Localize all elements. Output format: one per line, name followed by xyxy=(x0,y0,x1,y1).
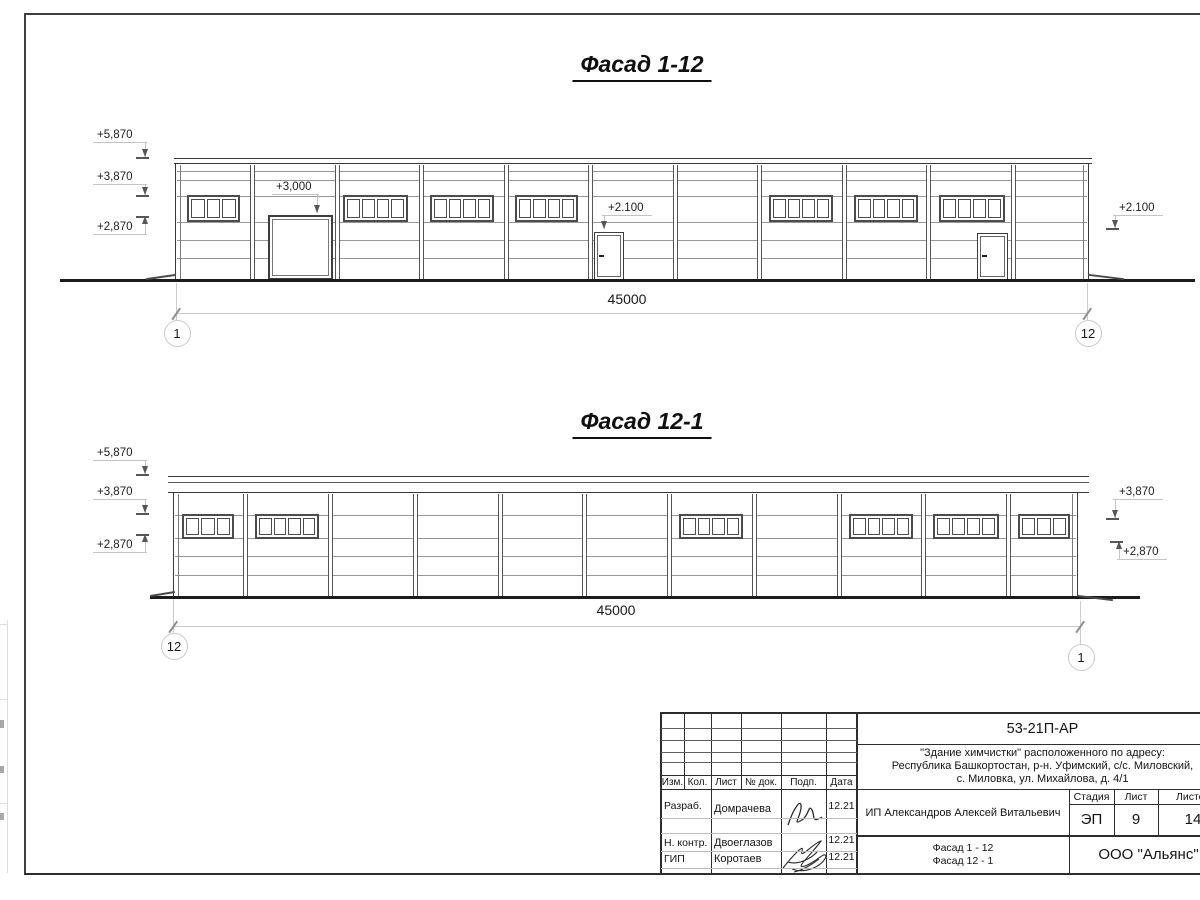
window-pane xyxy=(274,518,287,535)
sheet-frame-bottom xyxy=(24,873,1200,876)
titleblock-line xyxy=(661,789,1200,791)
ground-line xyxy=(60,279,1195,282)
roof-band-line xyxy=(168,482,1089,483)
window-pane xyxy=(207,199,221,218)
siding-line xyxy=(175,575,1076,576)
facade-1-12-title: Фасад 1-12 xyxy=(573,51,712,82)
column xyxy=(504,165,509,280)
arrow-down-icon xyxy=(142,466,148,474)
titleblock-line xyxy=(781,713,782,873)
edge-artifact xyxy=(0,813,4,820)
tb-sheets-header: Листов xyxy=(1158,790,1200,804)
column xyxy=(842,165,847,280)
level-tick xyxy=(136,474,149,476)
elevation-label: +5,870 xyxy=(97,447,133,459)
level-tick xyxy=(136,157,149,159)
window-pane xyxy=(773,199,786,218)
dimension-text: 45000 xyxy=(587,291,667,307)
edge-artifact xyxy=(0,720,4,728)
column xyxy=(243,494,248,597)
titleblock-line xyxy=(1114,790,1115,836)
window-pane xyxy=(952,518,965,535)
elevation-underline xyxy=(93,142,147,143)
column xyxy=(673,165,678,280)
window-pane xyxy=(967,518,980,535)
edge-artifact xyxy=(7,620,8,873)
facade-wall xyxy=(173,493,1078,597)
window xyxy=(343,195,408,222)
window xyxy=(187,195,240,222)
window-panes xyxy=(347,199,404,218)
column xyxy=(837,494,842,597)
window-pane xyxy=(434,199,447,218)
window xyxy=(933,514,999,539)
tb-client: ИП Александров Алексей Витальевич xyxy=(857,790,1069,836)
tb-doc-number: 53-21П-АР xyxy=(857,713,1200,744)
window-pane xyxy=(902,199,915,218)
window xyxy=(182,514,234,539)
window-pane xyxy=(683,518,696,535)
window xyxy=(854,195,918,222)
grid-axis-bubble: 1 xyxy=(1068,644,1095,671)
dimension-line xyxy=(176,313,1087,314)
arrow-down-icon xyxy=(142,187,148,195)
wall-edge-line xyxy=(1072,494,1073,596)
window-panes xyxy=(519,199,574,218)
titleblock-line xyxy=(661,752,857,753)
elevation-underline xyxy=(1113,499,1163,500)
window-pane xyxy=(982,518,995,535)
grid-axis-bubble: 12 xyxy=(161,633,188,660)
ground-line xyxy=(150,596,1140,599)
arrow-down-icon xyxy=(1112,220,1118,228)
tb-header-list: Лист xyxy=(711,775,741,790)
elevation-label: +2,870 xyxy=(97,539,133,551)
window-pane xyxy=(958,199,971,218)
column xyxy=(413,494,418,597)
window-pane xyxy=(377,199,390,218)
arrow-down-icon xyxy=(601,221,607,229)
elevation-label: +3,870 xyxy=(1119,486,1155,498)
titleblock-row-line xyxy=(661,818,857,819)
titleblock-line xyxy=(856,713,858,873)
elevation-label: +2.100 xyxy=(608,202,644,214)
column xyxy=(250,165,255,280)
tb-stage-value: ЭП xyxy=(1069,804,1114,835)
window xyxy=(769,195,833,222)
edge-artifact xyxy=(0,624,7,625)
window xyxy=(515,195,578,222)
column xyxy=(1006,494,1011,597)
window-pane xyxy=(817,199,830,218)
column xyxy=(921,494,926,597)
grid-axis-bubble: 12 xyxy=(1075,320,1102,347)
titleblock-line xyxy=(1158,790,1159,836)
level-tick xyxy=(136,534,149,536)
column xyxy=(335,165,340,280)
window-pane xyxy=(362,199,375,218)
window xyxy=(939,195,1005,222)
window-pane xyxy=(897,518,910,535)
tb-drawing-name2: Фасад 12 - 1 xyxy=(933,855,994,868)
window xyxy=(679,514,743,539)
window-pane xyxy=(303,518,316,535)
roof-band xyxy=(174,158,1092,164)
window-pane xyxy=(463,199,476,218)
window-pane xyxy=(478,199,491,218)
tb-company: ООО "Альянс" xyxy=(1069,836,1200,873)
elevation-label: +2,870 xyxy=(97,221,133,233)
window-pane xyxy=(519,199,531,218)
window-panes xyxy=(858,199,914,218)
window-pane xyxy=(1022,518,1035,535)
facade-12-1-title: Фасад 12-1 xyxy=(573,408,712,439)
column xyxy=(752,494,757,597)
window xyxy=(1018,514,1070,539)
elevation-underline xyxy=(1117,559,1167,560)
drawing-sheet: Фасад 1-12 Фасад 12-1 Изм. Кол. Лист № д… xyxy=(0,0,1200,900)
tb-sheet-header: Лист xyxy=(1114,790,1158,804)
signature-razrab xyxy=(785,795,827,831)
tb-sheets-value: 14 xyxy=(1158,804,1200,835)
titleblock-line xyxy=(1069,804,1200,805)
window-pane xyxy=(873,199,886,218)
tb-project-address: "Здание химчистки" расположенного по адр… xyxy=(857,744,1200,789)
edge-artifact xyxy=(0,699,7,700)
titleblock-line xyxy=(661,775,857,776)
window-panes xyxy=(259,518,315,535)
window-panes xyxy=(1022,518,1066,535)
tb-sheet-value: 9 xyxy=(1114,804,1158,835)
arrow-down-icon xyxy=(1112,510,1118,518)
wall-edge-line xyxy=(1083,165,1084,279)
titleblock-row-line xyxy=(661,868,857,869)
titleblock-line xyxy=(711,713,712,873)
column xyxy=(1011,165,1016,280)
column xyxy=(498,494,503,597)
door-handle xyxy=(982,255,987,257)
dimension-line xyxy=(173,626,1080,627)
level-tick xyxy=(136,513,149,515)
column xyxy=(588,165,593,280)
window-pane xyxy=(191,199,205,218)
window-pane xyxy=(853,518,866,535)
window-pane xyxy=(533,199,545,218)
window xyxy=(849,514,913,539)
dimension-text: 45000 xyxy=(576,602,656,618)
titleblock-line xyxy=(661,762,857,763)
siding-line xyxy=(175,556,1076,557)
window-panes xyxy=(943,199,1001,218)
column xyxy=(757,165,762,280)
column xyxy=(582,494,587,597)
level-tick xyxy=(136,216,149,218)
window-pane xyxy=(347,199,360,218)
column xyxy=(328,494,333,597)
sheet-frame-top xyxy=(24,13,1200,15)
window-panes xyxy=(186,518,230,535)
window-pane xyxy=(988,199,1001,218)
window-pane xyxy=(391,199,404,218)
tb-role-nkontr: Н. контр. xyxy=(661,834,713,851)
window-pane xyxy=(698,518,711,535)
elevation-label: +3,870 xyxy=(97,486,133,498)
window-pane xyxy=(259,518,272,535)
window-pane xyxy=(868,518,881,535)
siding-line xyxy=(177,180,1087,181)
column xyxy=(419,165,424,280)
window-pane xyxy=(858,199,871,218)
elevation-label: +2.100 xyxy=(1119,202,1155,214)
elevation-underline xyxy=(272,194,319,195)
elevation-label: +5,870 xyxy=(97,129,133,141)
window-pane xyxy=(887,199,900,218)
window-pane xyxy=(1053,518,1066,535)
elevation-label: +2,870 xyxy=(1123,546,1159,558)
titleblock-line xyxy=(857,744,1200,745)
tb-header-podp: Подп. xyxy=(781,775,826,790)
tb-header-ndok: № док. xyxy=(741,775,781,790)
window-pane xyxy=(973,199,986,218)
level-tick xyxy=(1110,541,1123,543)
window xyxy=(255,514,319,539)
window-pane xyxy=(222,199,236,218)
window-pane xyxy=(449,199,462,218)
tb-address-line2: Республика Башкортостан, р-н. Уфимский, … xyxy=(892,760,1193,773)
elevation-underline xyxy=(93,184,147,185)
tb-name-razrab: Домрачева xyxy=(711,800,781,818)
level-tick xyxy=(136,195,149,197)
tb-role-gip: ГИП xyxy=(661,851,713,867)
edge-artifact xyxy=(0,803,7,804)
wall-edge-line xyxy=(178,494,179,596)
wall-edge-line xyxy=(180,165,181,279)
window-pane xyxy=(802,199,815,218)
window-panes xyxy=(434,199,490,218)
window-pane xyxy=(727,518,740,535)
tb-header-kol: Кол. xyxy=(684,775,711,790)
roof-band xyxy=(168,476,1089,493)
titleblock-line xyxy=(661,728,857,729)
tb-stage-header: Стадия xyxy=(1069,790,1114,804)
arrow-down-icon xyxy=(314,205,320,213)
tb-drawing-name1: Фасад 1 - 12 xyxy=(933,842,994,855)
titleblock-line xyxy=(661,740,857,741)
column xyxy=(926,165,931,280)
window-pane xyxy=(201,518,214,535)
window-pane xyxy=(186,518,199,535)
gate-door xyxy=(268,215,333,280)
window-pane xyxy=(217,518,230,535)
titleblock-line xyxy=(826,713,827,873)
elevation-label: +3,000 xyxy=(276,181,312,193)
window-pane xyxy=(712,518,725,535)
window-pane xyxy=(1037,518,1050,535)
titleblock-row-line xyxy=(661,851,857,852)
tb-name-gip: Коротаев xyxy=(711,851,781,867)
level-tick xyxy=(1106,518,1119,520)
siding-line xyxy=(177,171,1087,172)
tb-role-razrab: Разраб. xyxy=(661,796,713,816)
elevation-underline xyxy=(93,499,147,500)
door xyxy=(977,233,1008,280)
window-panes xyxy=(683,518,739,535)
edge-artifact xyxy=(0,766,4,773)
window-panes xyxy=(853,518,909,535)
elevation-underline xyxy=(1113,215,1163,216)
titleblock-line xyxy=(857,835,1200,836)
window-panes xyxy=(937,518,995,535)
titleblock-row-line xyxy=(661,833,857,834)
door-handle xyxy=(599,255,604,257)
level-tick xyxy=(1106,228,1119,230)
arrow-down-icon xyxy=(142,505,148,513)
column xyxy=(667,494,672,597)
window-pane xyxy=(937,518,950,535)
elevation-underline xyxy=(93,234,147,235)
tb-header-izm: Изм. xyxy=(661,775,684,790)
window-pane xyxy=(943,199,956,218)
sheet-frame-left xyxy=(24,13,26,874)
tb-header-data: Дата xyxy=(826,775,857,790)
elevation-label: +3,870 xyxy=(97,171,133,183)
elevation-underline xyxy=(93,552,147,553)
window-pane xyxy=(562,199,574,218)
tb-address-line1: "Здание химчистки" расположенного по адр… xyxy=(920,747,1165,760)
window-panes xyxy=(191,199,236,218)
window-pane xyxy=(548,199,560,218)
tb-name-nkontr: Двоеглазов xyxy=(711,834,781,851)
tb-drawing-names: Фасад 1 - 12 Фасад 12 - 1 xyxy=(857,836,1069,873)
grid-axis-bubble: 1 xyxy=(164,320,191,347)
window-pane xyxy=(788,199,801,218)
window-pane xyxy=(882,518,895,535)
window-panes xyxy=(773,199,829,218)
window xyxy=(430,195,494,222)
tb-date-razrab: 12.21 xyxy=(826,798,857,814)
titleblock-line xyxy=(1069,790,1070,873)
elevation-underline xyxy=(93,460,147,461)
door xyxy=(594,232,624,280)
tb-address-line3: с. Миловка, ул. Михайлова, д. 4/1 xyxy=(957,773,1129,786)
window-pane xyxy=(288,518,301,535)
elevation-underline xyxy=(602,215,652,216)
gate-door-inner xyxy=(272,219,329,276)
arrow-down-icon xyxy=(142,149,148,157)
